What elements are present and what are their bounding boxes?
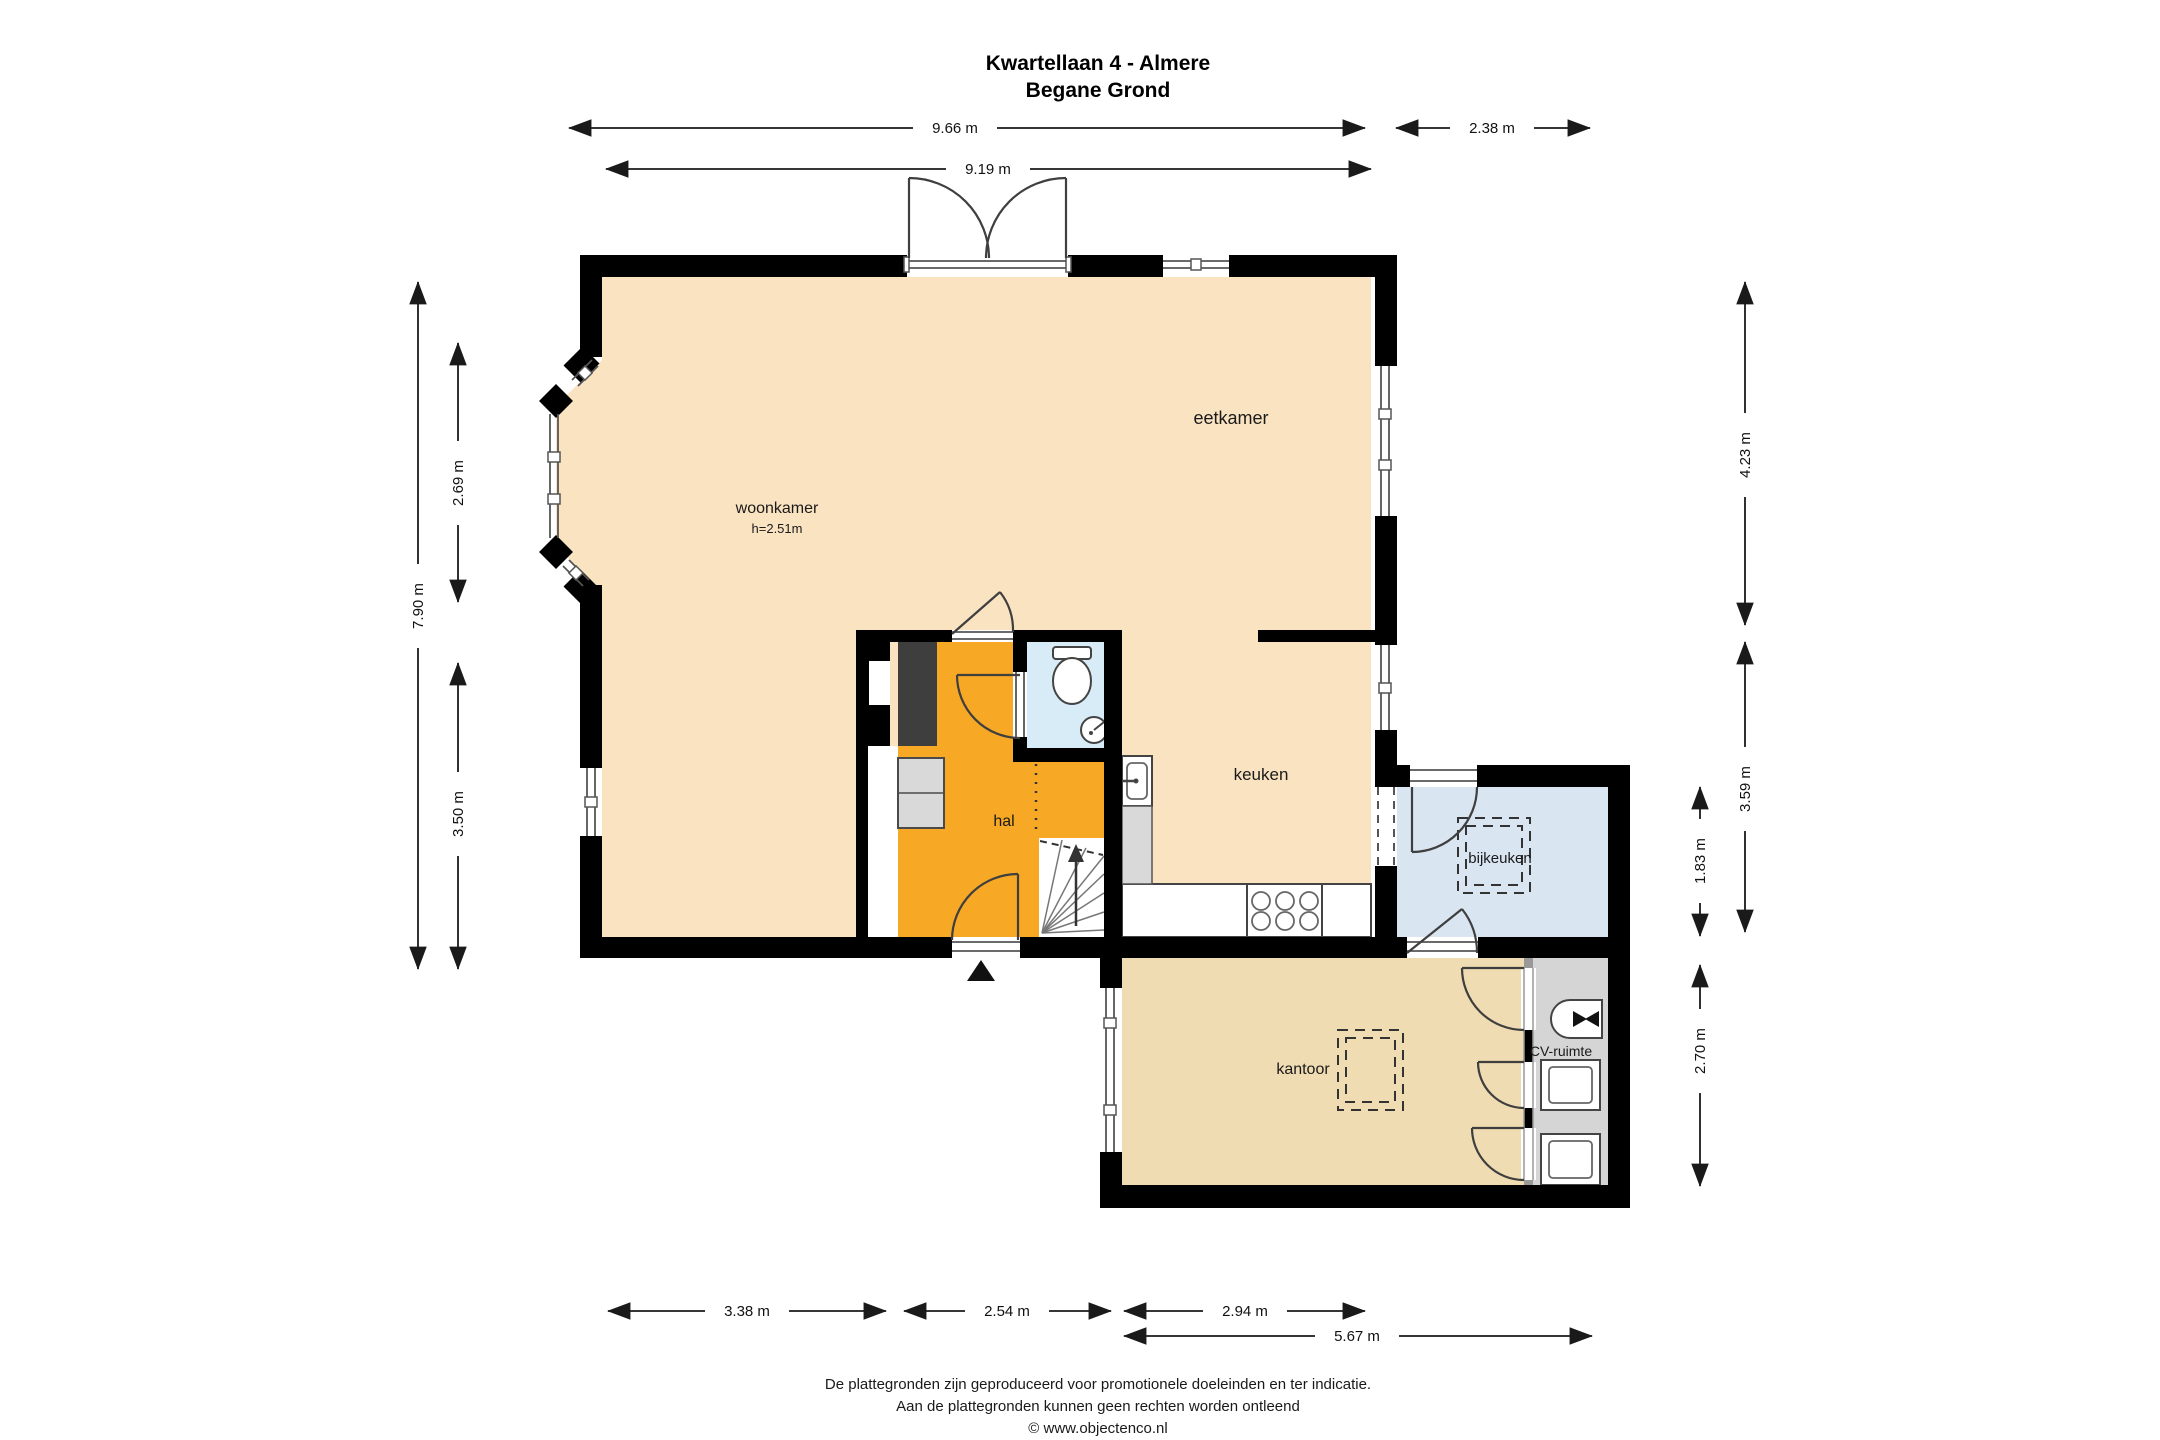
- svg-text:2.70 m: 2.70 m: [1692, 1028, 1709, 1074]
- hall-cabinet: [898, 758, 944, 828]
- svg-text:1.83 m: 1.83 m: [1692, 838, 1709, 884]
- stairs-icon: [1039, 838, 1104, 937]
- label-cv-ruimte: CV-ruimte: [1530, 1043, 1592, 1059]
- label-hal: hal: [993, 813, 1014, 830]
- dim-right-kantoor: 2.70 m: [1692, 965, 1709, 1186]
- cv-partition: [1521, 958, 1536, 1185]
- woonkamer-west-window: [580, 768, 602, 836]
- label-keuken: keuken: [1234, 765, 1289, 784]
- dim-top-main: 9.66 m: [569, 120, 1365, 137]
- svg-text:2.94 m: 2.94 m: [1222, 1303, 1268, 1320]
- flue-block: [898, 642, 937, 746]
- svg-text:3.38 m: 3.38 m: [724, 1303, 770, 1320]
- svg-text:2.69 m: 2.69 m: [450, 460, 467, 506]
- floorplan-page: Kwartellaan 4 - Almere Begane Grond: [0, 0, 2160, 1440]
- svg-text:9.19 m: 9.19 m: [965, 161, 1011, 178]
- dim-bottom-annex: 5.67 m: [1124, 1328, 1592, 1345]
- kantoor-west-window: [1100, 988, 1122, 1152]
- boiler-icon: [1551, 1000, 1602, 1038]
- dim-top-annex: 2.38 m: [1396, 120, 1590, 137]
- svg-text:2.54 m: 2.54 m: [984, 1303, 1030, 1320]
- footer-copyright: © www.objectenco.nl: [0, 1418, 2160, 1440]
- dim-top-inner: 9.19 m: [606, 161, 1371, 178]
- svg-text:2.38 m: 2.38 m: [1469, 120, 1515, 137]
- svg-text:4.23 m: 4.23 m: [1737, 432, 1754, 478]
- footer-line-2: Aan de plattegronden kunnen geen rechten…: [0, 1396, 2160, 1418]
- dim-bottom-woonkamer: 3.38 m: [608, 1303, 886, 1320]
- dim-left-total: 7.90 m: [410, 282, 427, 969]
- footer-line-1: De plattegronden zijn geproduceerd voor …: [0, 1374, 2160, 1396]
- page-title-address: Kwartellaan 4 - Almere: [0, 50, 2160, 77]
- keuken-east-window: [1375, 645, 1397, 730]
- svg-text:7.90 m: 7.90 m: [410, 583, 427, 629]
- label-woonkamer: woonkamer: [735, 500, 819, 517]
- footer-disclaimer: De plattegronden zijn geproduceerd voor …: [0, 1374, 2160, 1440]
- kitchen-sink-icon: [1122, 756, 1152, 806]
- dim-right-upper: 4.23 m: [1737, 282, 1754, 625]
- dim-right-middle: 3.59 m: [1737, 642, 1754, 932]
- dim-left-lower: 3.50 m: [450, 663, 467, 969]
- french-doors: [904, 178, 1071, 277]
- bay-window-front: [548, 414, 560, 538]
- dim-right-bijkeuken: 1.83 m: [1692, 787, 1709, 936]
- eetkamer-east-window: [1375, 366, 1397, 516]
- label-kantoor: kantoor: [1276, 1061, 1330, 1078]
- dim-bottom-keuken: 2.94 m: [1124, 1303, 1365, 1320]
- keuken-bijkeuken-passage: [1375, 787, 1397, 866]
- svg-text:3.59 m: 3.59 m: [1737, 766, 1754, 812]
- svg-text:3.50 m: 3.50 m: [450, 791, 467, 837]
- floorplan-canvas: eetkamer woonkamer h=2.51m hal keuken bi…: [0, 0, 2160, 1440]
- dim-bottom-hal: 2.54 m: [904, 1303, 1111, 1320]
- dryer-icon: [1541, 1134, 1600, 1185]
- washer-icon: [1541, 1060, 1600, 1110]
- label-eetkamer: eetkamer: [1193, 408, 1268, 428]
- page-title-floor: Begane Grond: [0, 77, 2160, 104]
- svg-text:5.67 m: 5.67 m: [1334, 1328, 1380, 1345]
- toilet-sink-icon: [1081, 717, 1107, 743]
- dim-left-upper: 2.69 m: [450, 343, 467, 602]
- label-bijkeuken: bijkeuken: [1468, 850, 1531, 867]
- title-block: Kwartellaan 4 - Almere Begane Grond: [0, 50, 2160, 104]
- toilet-icon: [1053, 647, 1091, 704]
- counter-cabinet: [1122, 806, 1152, 884]
- label-woonkamer-height: h=2.51m: [752, 521, 803, 536]
- entrance-arrow-icon: [967, 960, 995, 981]
- eetkamer-top-window: [1163, 255, 1229, 277]
- svg-text:9.66 m: 9.66 m: [932, 120, 978, 137]
